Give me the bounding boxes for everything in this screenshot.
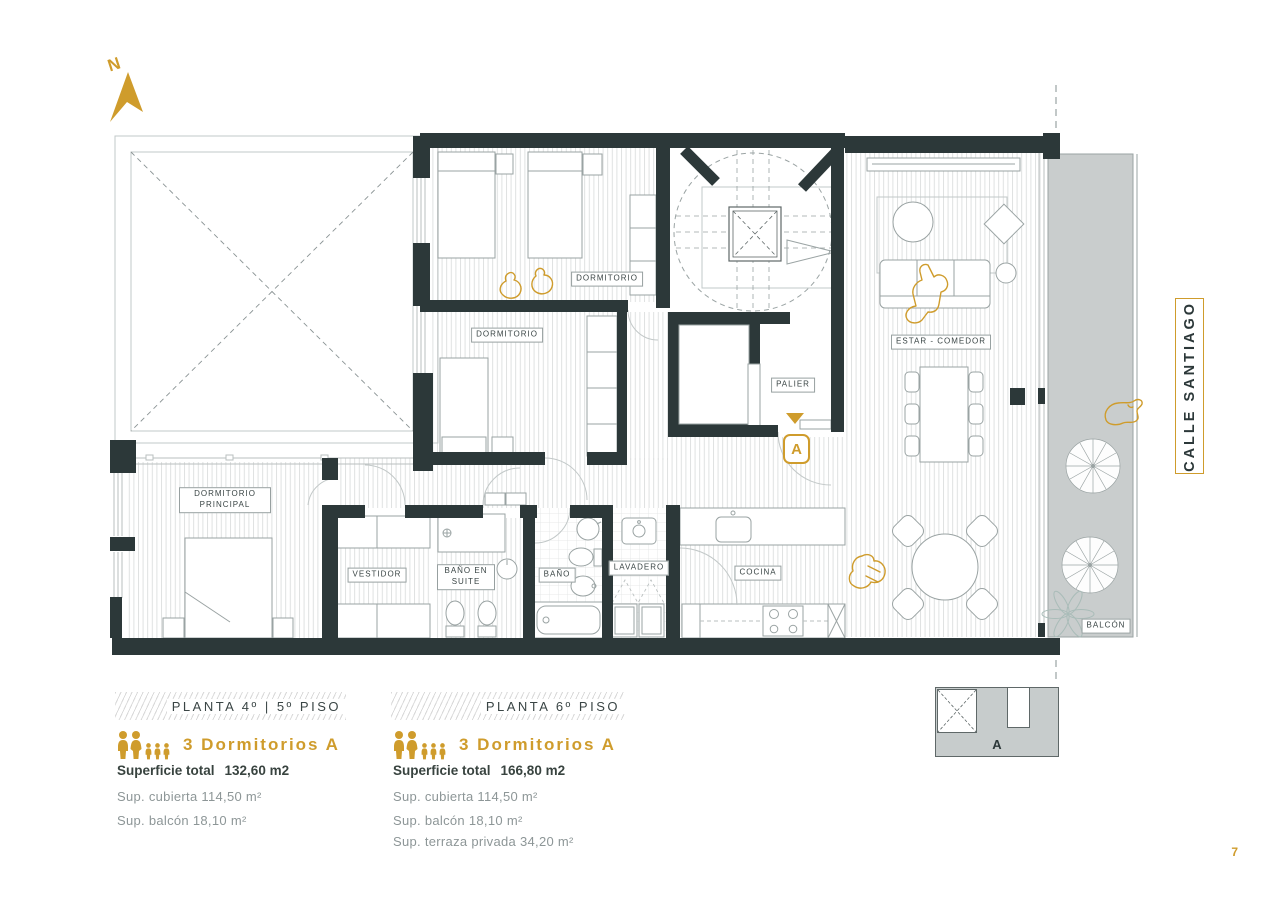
room-label-bathroom: BAÑO: [539, 568, 576, 583]
total-area-line: Superficie total166,80 m2: [393, 763, 565, 778]
street-name-sign: CALLE SANTIAGO: [1175, 298, 1204, 474]
floor-title-band: PLANTA 4º | 5º PISO: [115, 692, 346, 720]
terrace: [115, 136, 438, 443]
key-plan-void: [937, 689, 977, 733]
key-plan-unit-letter: A: [936, 737, 1058, 752]
room-label-kitchen: COCINA: [734, 566, 781, 581]
north-arrow-icon: [110, 72, 143, 122]
street-name-label: CALLE SANTIAGO: [1182, 301, 1198, 472]
room-label-ensuite: BAÑO EN SUITE: [437, 564, 495, 590]
tree: [1066, 439, 1120, 493]
total-area-line: Superficie total132,60 m2: [117, 763, 289, 778]
area-detail: Sup. balcón 18,10 m²: [393, 813, 523, 828]
total-area-label: Superficie total: [393, 763, 491, 778]
room-label-master-bedroom: DORMITORIO PRINCIPAL: [179, 487, 271, 513]
tree: [1062, 537, 1118, 593]
family-icons: [393, 729, 451, 760]
floor-title: PLANTA 6º PISO: [481, 699, 625, 714]
room-label-balcony: BALCÓN: [1082, 619, 1131, 634]
room-label-bedroom-mid: DORMITORIO: [471, 328, 543, 343]
area-detail: Sup. cubierta 114,50 m²: [393, 789, 538, 804]
balcony: [1042, 154, 1137, 639]
total-area-value: 166,80 m2: [501, 763, 566, 778]
key-plan: A: [935, 687, 1059, 757]
room-label-bedroom-top: DORMITORIO: [571, 272, 643, 287]
elevator-shaft: [668, 314, 760, 435]
unit-name: 3 Dormitorios A: [459, 735, 616, 755]
unit-entry-marker: A: [783, 434, 810, 464]
floor-plan-page: N DORMITORIO DORMITORIO DORMITORIO PRINC…: [0, 0, 1273, 900]
area-detail: Sup. balcón 18,10 m²: [117, 813, 247, 828]
total-area-value: 132,60 m2: [225, 763, 290, 778]
total-area-label: Superficie total: [117, 763, 215, 778]
area-detail: Sup. cubierta 114,50 m²: [117, 789, 262, 804]
unit-name: 3 Dormitorios A: [183, 735, 340, 755]
floor-title: PLANTA 4º | 5º PISO: [167, 699, 346, 714]
key-plan-notch: [1007, 688, 1030, 728]
room-label-dressing: VESTIDOR: [348, 568, 407, 583]
floor-title-band: PLANTA 6º PISO: [391, 692, 625, 720]
elevator-symbol: [729, 207, 781, 261]
family-icons: [117, 729, 175, 760]
entry-arrow-icon: [786, 413, 804, 424]
page-number: 7: [1218, 845, 1238, 859]
room-label-landing: PALIER: [771, 378, 815, 393]
room-label-living-dining: ESTAR - COMEDOR: [891, 335, 991, 350]
area-detail: Sup. terraza privada 34,20 m²: [393, 834, 574, 849]
room-label-laundry: LAVADERO: [609, 561, 669, 576]
